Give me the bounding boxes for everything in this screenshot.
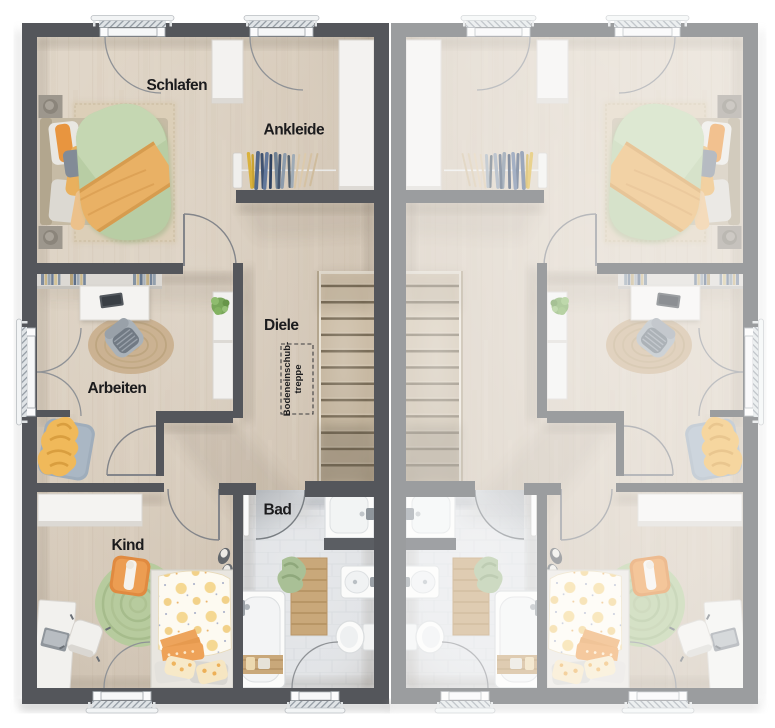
svg-text:Kind: Kind [112,537,144,554]
svg-text:Arbeiten: Arbeiten [88,380,147,397]
svg-text:Bad: Bad [264,502,292,519]
svg-text:Bodeneinschub-: Bodeneinschub- [282,342,293,416]
svg-text:Schlafen: Schlafen [147,77,208,94]
svg-text:Ankleide: Ankleide [264,122,325,139]
svg-text:treppe: treppe [293,364,304,393]
svg-text:Diele: Diele [264,317,299,334]
